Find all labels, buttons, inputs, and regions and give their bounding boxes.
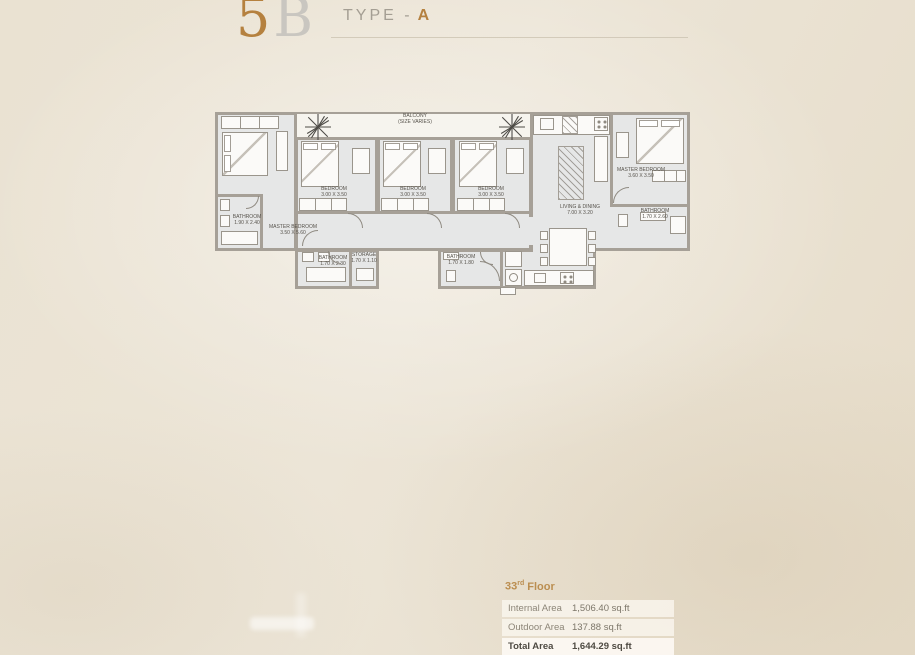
pillow (661, 120, 680, 127)
dining-chair (588, 231, 596, 240)
room-dims: 3.00 X 3.50 (400, 192, 426, 198)
corridor-opening (527, 217, 536, 245)
pillow (639, 120, 658, 127)
pillow (479, 143, 494, 150)
stove-icon (560, 272, 574, 284)
unit-title: 5B (236, 0, 316, 49)
kitchen-sink (540, 118, 554, 130)
pillow (403, 143, 418, 150)
corridor-wall (297, 211, 530, 214)
dining-chair (588, 244, 596, 253)
floor-number: 33 (505, 581, 517, 593)
bathroom-wall (610, 204, 688, 207)
room-label-bedroom-2: BEDROOM 3.00 X 3.50 (400, 186, 426, 199)
toilet (446, 270, 456, 282)
room-label-master-bedroom-right: MASTER BEDROOM 3.60 X 3.50 (617, 167, 665, 180)
pillow (461, 143, 476, 150)
room-dims: 1.70 X 2.30 (319, 261, 348, 267)
room-dims: 1.90 X 2.40 (233, 220, 262, 226)
unit-number: 5 (236, 0, 273, 49)
bathtub (221, 231, 258, 245)
room-dims: 7.00 X 3.20 (560, 210, 600, 216)
wardrobe (221, 116, 279, 129)
room-label-bathroom-bottom-left: BATHROOM 1.70 X 2.30 (319, 255, 348, 268)
dresser (616, 132, 629, 158)
dresser (276, 131, 288, 171)
pillow (303, 143, 318, 150)
room-dims: (SIZE VARIES) (398, 119, 432, 125)
bathtub (306, 267, 346, 282)
washer-drum-icon (509, 273, 518, 282)
pillow (224, 155, 231, 172)
dining-chair (540, 231, 548, 240)
room-label-bedroom-3: BEDROOM 3.00 X 3.50 (478, 186, 504, 199)
toilet (220, 215, 230, 227)
unit-letter: B (273, 0, 316, 49)
room-label-bedroom-1: BEDROOM 3.00 X 3.50 (321, 186, 347, 199)
floor-ordinal: rd (517, 580, 524, 587)
pillow (385, 143, 400, 150)
area-value: 137.88 sq.ft (572, 622, 622, 633)
toilet (618, 214, 628, 227)
desk (428, 148, 446, 174)
room-label-balcony: BALCONY (SIZE VARIES) (398, 113, 432, 126)
desk (352, 148, 370, 174)
room-label-bathroom-bottom-mid: BATHROOM 1.70 X 1.80 (447, 254, 476, 267)
room-dims: 1.70 X 1.10 (351, 258, 377, 264)
room-label-master-bedroom-left: MASTER BEDROOM 3.50 X 5.60 (269, 224, 317, 237)
floor-word: Floor (527, 581, 555, 593)
room-label-living-dining: LIVING & DINING 7.00 X 3.20 (560, 204, 600, 217)
floor-label: 33rdFloor (505, 580, 674, 593)
type-value: A (418, 7, 433, 24)
stove-icon (594, 117, 608, 131)
desk (506, 148, 524, 174)
brochure-page: 5B TYPE -A (0, 0, 915, 655)
hob-icon (562, 116, 578, 134)
fridge (505, 251, 522, 267)
wardrobe (457, 198, 505, 211)
balcony-plant-icon (499, 114, 525, 140)
room-dims: 1.70 X 1.80 (447, 260, 476, 266)
sink (220, 199, 230, 211)
area-label: Internal Area (508, 603, 572, 614)
dining-table (549, 228, 587, 266)
room-label-bathroom-right: BATHROOM 1.70 X 2.60 (641, 208, 670, 221)
bedroom-divider-wall (375, 139, 380, 213)
type-prefix: TYPE - (343, 7, 413, 24)
room-label-bathroom-left: BATHROOM 1.90 X 2.40 (233, 214, 262, 227)
room-dims: 3.60 X 3.50 (617, 173, 665, 179)
area-value: 1,506.40 sq.ft (572, 603, 630, 614)
area-summary: 33rdFloor Internal Area 1,506.40 sq.ft O… (502, 580, 674, 655)
area-label: Outdoor Area (508, 622, 572, 633)
kitchen-wall (500, 251, 503, 287)
area-row-outdoor: Outdoor Area 137.88 sq.ft (502, 619, 674, 636)
rug (558, 146, 584, 200)
dining-chair (588, 257, 596, 266)
room-dims: 3.50 X 5.60 (269, 230, 317, 236)
room-dims: 1.70 X 2.60 (641, 214, 670, 220)
shower (670, 216, 686, 234)
pillow (224, 135, 231, 152)
storage-shelf (356, 268, 374, 281)
pillow (321, 143, 336, 150)
wardrobe (299, 198, 347, 211)
room-dims: 3.00 X 3.50 (321, 192, 347, 198)
header-divider (331, 37, 688, 38)
fridge (594, 136, 608, 182)
wardrobe (381, 198, 429, 211)
watermark-logo-mark (296, 593, 306, 637)
master-bedroom-wall (610, 112, 613, 207)
room-label-storage: STORAGE 1.70 X 1.10 (351, 252, 377, 265)
balcony-plant-icon (305, 114, 331, 140)
dining-chair (540, 257, 548, 266)
room-dims: 3.00 X 3.50 (478, 192, 504, 198)
bedroom-divider-wall (450, 139, 455, 213)
sink (302, 252, 314, 262)
area-row-total: Total Area 1,644.29 sq.ft (502, 638, 674, 655)
area-row-internal: Internal Area 1,506.40 sq.ft (502, 600, 674, 617)
area-value: 1,644.29 sq.ft (572, 641, 632, 652)
area-label: Total Area (508, 641, 572, 652)
kitchen-sink (534, 273, 546, 283)
type-title: TYPE -A (343, 7, 432, 25)
dining-chair (540, 244, 548, 253)
entry-step (500, 287, 516, 295)
